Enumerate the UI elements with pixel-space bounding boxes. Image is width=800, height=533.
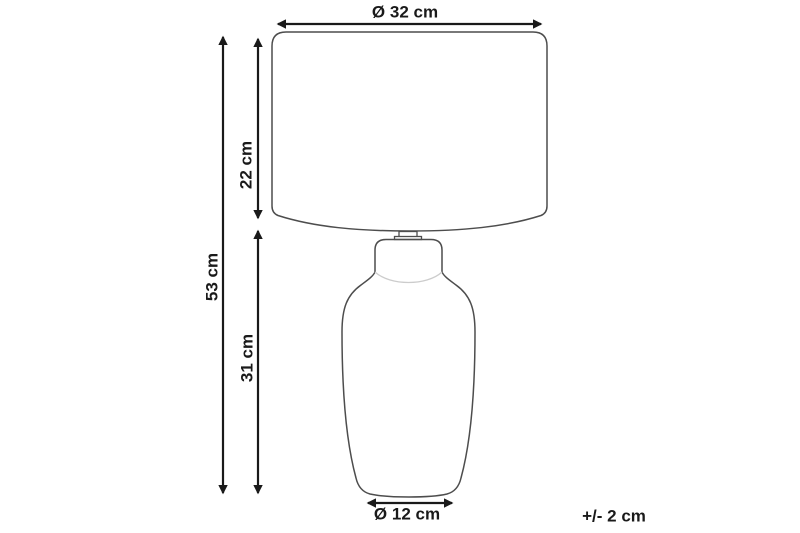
total-height-label: 53 cm: [204, 253, 221, 301]
lamp-shade-outline: [272, 32, 547, 231]
base-diameter-label: Ø 12 cm: [374, 506, 440, 523]
lamp-dimension-diagram: Ø 32 cm 22 cm 53 cm 31 cm Ø 12 cm +/- 2 …: [0, 0, 800, 533]
tolerance-label: +/- 2 cm: [582, 508, 646, 525]
lamp-line-drawing: [0, 0, 800, 533]
lamp-body-outline: [342, 240, 475, 498]
shade-diameter-label: Ø 32 cm: [372, 4, 438, 21]
lamp-shoulder-rim-line: [375, 272, 442, 283]
body-height-label: 31 cm: [239, 334, 256, 382]
shade-height-label: 22 cm: [238, 141, 255, 189]
